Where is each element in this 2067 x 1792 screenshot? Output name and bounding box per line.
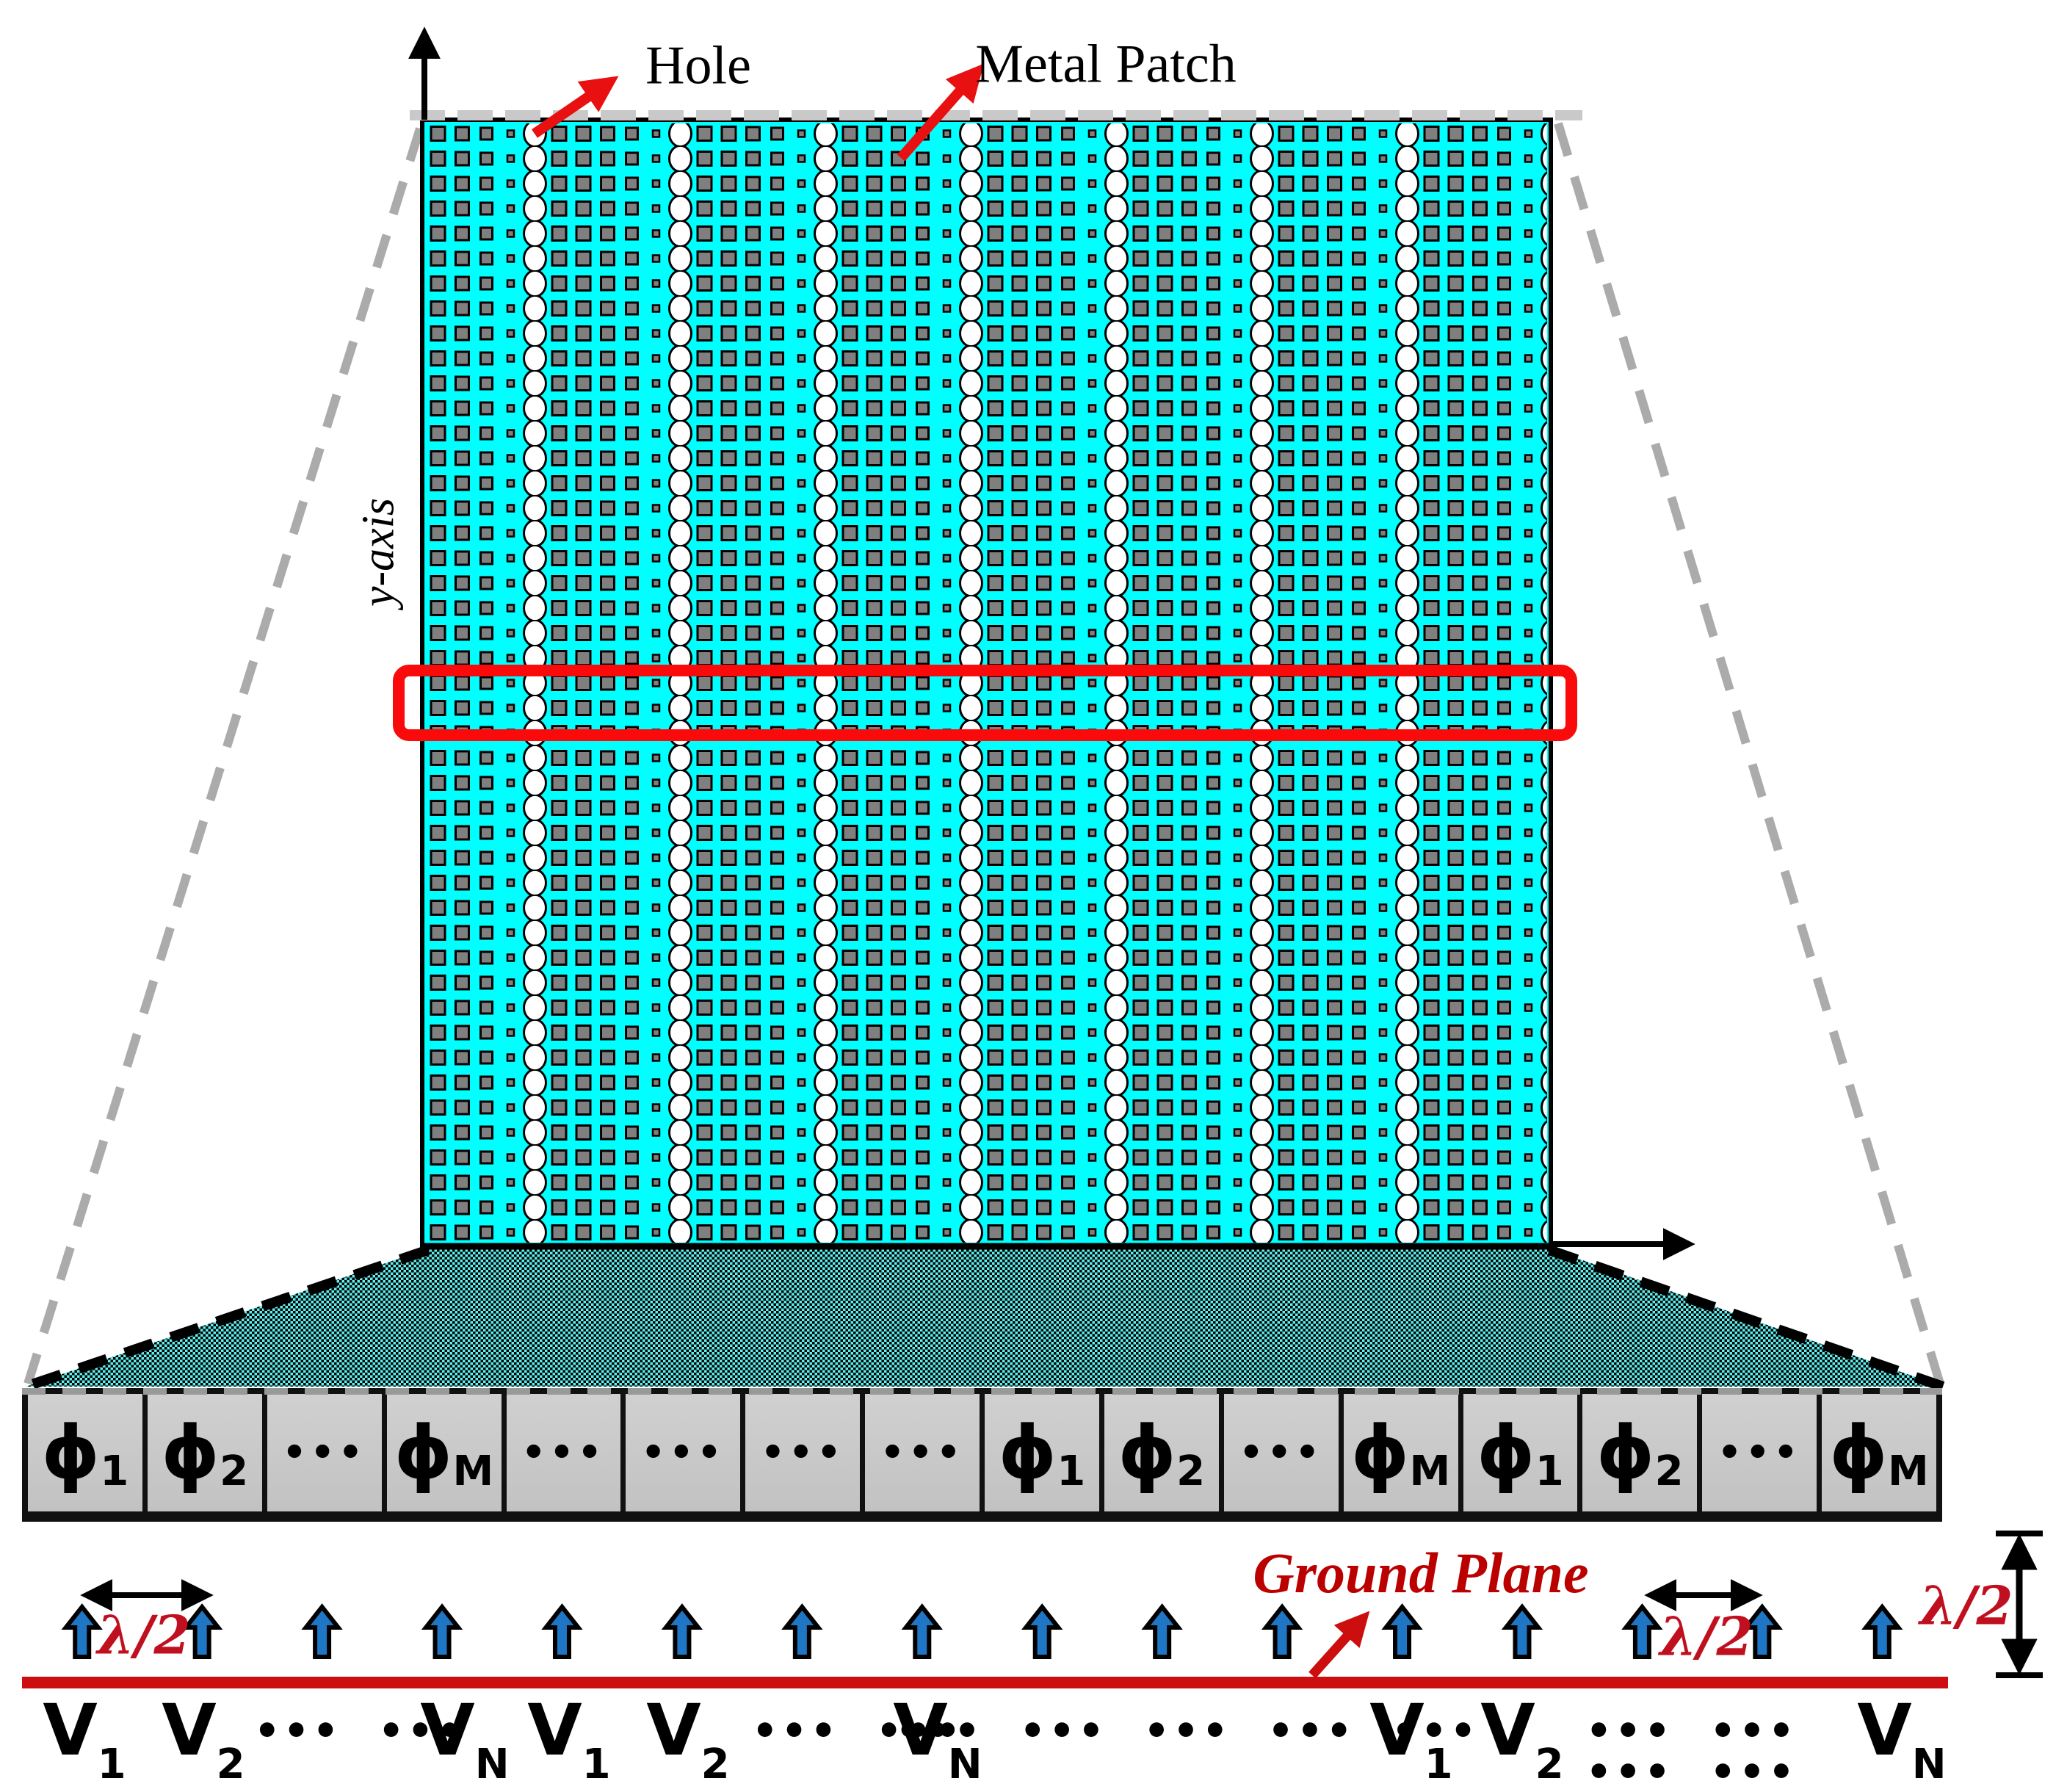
ground-plane-line <box>22 1677 1948 1688</box>
feed-arrow-icon <box>1866 1607 1898 1657</box>
phase-symbol: ϕ <box>1118 1416 1177 1489</box>
ground-plane-label: Ground Plane <box>1253 1540 1588 1606</box>
feed-arrow-icon <box>1026 1607 1058 1657</box>
phase-shifter-cell-dots: ••• <box>745 1394 865 1511</box>
lambda-half-label-right: λ/2 <box>1660 1605 1753 1668</box>
phase-subscript: 2 <box>1655 1451 1684 1492</box>
ground-plane-annotation-arrow-icon <box>1312 1619 1363 1675</box>
phase-shifter-cell-dots: ••• <box>1702 1394 1822 1511</box>
feed-arrow-icon <box>1506 1607 1538 1657</box>
phase-shifter-cell: ϕM <box>1344 1394 1463 1511</box>
lambda-half-label-left: λ/2 <box>98 1604 191 1666</box>
feed-arrow-icon <box>66 1607 98 1657</box>
ellipsis-dots: ••• <box>761 1431 845 1475</box>
phase-subscript: M <box>1888 1451 1929 1492</box>
ellipsis-dots: ••• <box>521 1431 606 1475</box>
phase-shifter-cell: ϕ2 <box>1582 1394 1702 1511</box>
perspective-line-right <box>1558 123 1940 1384</box>
metasurface-antenna-figure: Hole Metal Patch y-axis Ground Plane λ/2… <box>0 0 2067 1792</box>
phase-subscript: 2 <box>220 1451 248 1492</box>
phase-subscript: 1 <box>1535 1451 1564 1492</box>
phase-shifter-cell-dots: ••• <box>267 1394 387 1511</box>
ellipsis-dots: ••• <box>641 1431 725 1475</box>
phase-shifter-cell-dots: ••• <box>626 1394 745 1511</box>
feed-arrow-icon <box>1386 1607 1419 1657</box>
feed-arrow-icon <box>1146 1607 1179 1657</box>
feed-arrow-icon <box>786 1607 818 1657</box>
lambda-half-label-vertical: λ/2 <box>1920 1575 2013 1637</box>
phase-subscript: M <box>453 1451 494 1492</box>
phase-subscript: M <box>1410 1451 1451 1492</box>
ellipsis-dots: ••• <box>880 1431 965 1475</box>
feed-arrow-icon <box>546 1607 578 1657</box>
phase-shifter-cell: ϕM <box>1822 1394 1936 1511</box>
phase-symbol: ϕ <box>1477 1416 1535 1489</box>
feed-arrow-icon <box>306 1607 339 1657</box>
phase-shifter-cell-dots: ••• <box>507 1394 626 1511</box>
patch-hole-array <box>426 123 1547 1243</box>
phase-shifter-row: ϕ1ϕ2•••ϕM••••••••••••ϕ1ϕ2•••ϕMϕ1ϕ2•••ϕM <box>22 1388 1942 1522</box>
phase-symbol: ϕ <box>1596 1416 1655 1489</box>
ellipsis-dots: ••• <box>1717 1431 1802 1475</box>
diagram-canvas <box>0 0 2067 1792</box>
phase-shifter-cell: ϕ1 <box>1463 1394 1583 1511</box>
feed-arrow-icon <box>1266 1607 1298 1657</box>
ellipsis-dots: ••• <box>1239 1431 1323 1475</box>
phase-symbol: ϕ <box>1351 1416 1410 1489</box>
phase-shifter-cell: ϕ2 <box>1104 1394 1224 1511</box>
phase-shifter-cell: ϕ1 <box>28 1394 148 1511</box>
perspective-line-left <box>28 129 420 1384</box>
phase-shifter-cell: ϕM <box>387 1394 507 1511</box>
phase-subscript: 2 <box>1176 1451 1205 1492</box>
feed-arrow-icon <box>906 1607 938 1657</box>
phase-shifter-cell-dots: ••• <box>865 1394 985 1511</box>
phase-shifter-cell-dots: ••• <box>1224 1394 1344 1511</box>
phase-symbol: ϕ <box>999 1416 1057 1489</box>
feed-arrow-icon <box>186 1607 218 1657</box>
feed-arrow-icon <box>426 1607 458 1657</box>
feed-arrow-icon <box>666 1607 698 1657</box>
phase-row-dashed-edge <box>22 1388 1942 1395</box>
metal-patch-label: Metal Patch <box>975 34 1237 96</box>
phase-shifter-cell: ϕ2 <box>148 1394 267 1511</box>
phase-symbol: ϕ <box>1829 1416 1888 1489</box>
hole-label: Hole <box>645 35 751 98</box>
phase-shifter-cell: ϕ1 <box>985 1394 1104 1511</box>
feed-arrows-group <box>66 1607 1899 1657</box>
ellipsis-dots: ••• <box>282 1431 366 1475</box>
feed-arrow-icon <box>1626 1607 1658 1657</box>
y-axis-label: y-axis <box>353 498 405 607</box>
substrate-perspective <box>26 1249 1943 1387</box>
phase-subscript: 1 <box>100 1451 128 1492</box>
phase-symbol: ϕ <box>394 1416 453 1489</box>
phase-symbol: ϕ <box>162 1416 220 1489</box>
phase-subscript: 1 <box>1057 1451 1085 1492</box>
phase-symbol: ϕ <box>42 1416 101 1489</box>
